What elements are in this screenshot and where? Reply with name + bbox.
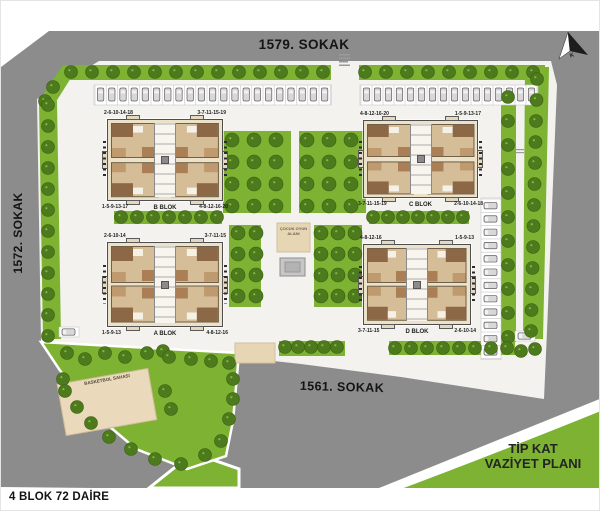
tree-icon [348,247,362,261]
tree-icon [442,211,455,224]
tree-icon [159,385,172,398]
tree-icon [401,66,414,79]
unit-numbers: 4-8-12-16 [360,236,382,241]
tree-highlight [318,230,320,232]
car-windshield [177,91,181,94]
block-name: C BLOK [409,203,432,208]
tree-icon [427,211,440,224]
tree-icon [331,226,345,240]
street-label-left: 1572. SOKAK [11,183,25,283]
playground-label: ÇOCUK OYUN ALANI [277,227,310,236]
tree-highlight [273,181,275,183]
tree-icon [314,268,328,282]
car-windshield [408,91,412,94]
tree-highlight [251,203,253,205]
plan-footer: 4 BLOK 72 DAİRE [9,491,109,503]
tree-highlight [166,354,168,356]
tree-highlight [60,376,62,378]
car-windshield [143,91,147,94]
block-entrance [381,240,395,245]
tree-icon [322,199,336,213]
car-windshield [463,91,467,94]
car-windshield [419,91,423,94]
car-windshield [278,91,282,94]
tree-icon [469,342,482,355]
car-icon [495,88,501,101]
tree-highlight [188,356,190,358]
tree-icon [359,66,372,79]
car-windshield [452,91,456,94]
tree-highlight [118,214,120,216]
tree-icon [344,177,358,191]
tree-highlight [505,166,507,168]
unit-numbers: 4-8-12-16 [206,331,228,336]
car-windshield [255,91,259,94]
car-windshield [485,244,488,248]
car-icon [198,88,204,101]
tree-icon [128,66,141,79]
tree-highlight [467,69,469,71]
car-icon [517,88,523,101]
tree-highlight [352,272,354,274]
tree-icon [149,453,162,466]
tree-highlight [50,84,52,86]
car-windshield [485,310,488,314]
tree-icon [530,94,543,107]
tree-icon [502,235,515,248]
tree-highlight [445,214,447,216]
block-core [406,248,428,321]
block-floorplan-quadrant [111,286,159,323]
tree-highlight [128,446,130,448]
tree-icon [205,355,218,368]
tree-highlight [321,344,323,346]
block-d[interactable]: 4-8-12-16 1-5-9-13 3-7-11-15 2-6-10-14 D… [363,244,471,325]
block-a[interactable]: 2-6-10-14 3-7-11-15 1-5-9-13 4-8-12-16 A… [107,242,223,327]
tree-highlight [64,350,66,352]
tree-highlight [134,214,136,216]
tree-icon [502,163,515,176]
tree-highlight [532,346,534,348]
car-windshield [474,91,478,94]
tree-highlight [278,69,280,71]
tree-icon [269,133,283,147]
tree-icon [501,342,514,355]
tree-highlight [532,160,534,162]
car-windshield [485,337,488,341]
tree-icon [344,155,358,169]
car-icon [221,88,227,101]
tree-highlight [530,69,532,71]
tree-icon [331,268,345,282]
tree-icon [300,155,314,169]
unit-numbers: 2-6-10-14 [454,329,476,334]
tree-highlight [534,97,536,99]
tree-highlight [152,456,154,458]
tree-highlight [162,388,164,390]
tree-highlight [304,203,306,205]
tree-highlight [400,214,402,216]
tree-highlight [273,159,275,161]
tree-icon [227,393,240,406]
tree-icon [42,99,55,112]
tree-icon [231,226,245,240]
tree-icon [42,330,55,343]
car-icon [109,88,115,101]
tree-icon [131,211,144,224]
tree-highlight [173,69,175,71]
unit-numbers: 1-5-9-13-17 [455,112,481,117]
car-icon [120,88,126,101]
tree-icon [528,178,541,191]
tree-icon [254,66,267,79]
tree-highlight [505,94,507,96]
unit-numbers: 1-5-9-13-17 [102,205,128,210]
tree-icon [502,91,515,104]
tree-highlight [505,142,507,144]
tree-highlight [208,358,210,360]
tree-highlight [326,159,328,161]
tree-highlight [45,102,47,104]
car-icon [418,88,424,101]
tree-highlight [456,345,458,347]
tree-icon [185,353,198,366]
block-entrance [439,324,453,329]
car-icon [254,88,260,101]
tree-icon [42,141,55,154]
tree-highlight [531,202,533,204]
tree-highlight [304,137,306,139]
tree-highlight [229,181,231,183]
tree-highlight [45,249,47,251]
car-windshield [188,91,192,94]
block-entrance [381,324,395,329]
tree-highlight [182,214,184,216]
tree-icon [531,73,544,86]
tree-highlight [295,344,297,346]
car-windshield [518,91,522,94]
car-icon [142,88,148,101]
block-core [154,123,176,197]
tree-icon [318,341,331,354]
tree-highlight [532,181,534,183]
unit-numbers: 2-6-10-14-18 [454,202,483,207]
tree-highlight [150,214,152,216]
tree-icon [42,309,55,322]
tree-icon [317,66,330,79]
unit-numbers: 1-5-9-13 [455,236,474,241]
car-windshield [210,91,214,94]
site-plan: 2-6-10-14-18 3-7-11-15-19 1-5-9-13-17 4-… [0,0,600,511]
tree-icon [314,289,328,303]
tree-icon [525,304,538,317]
car-windshield [496,91,500,94]
tree-highlight [229,137,231,139]
tree-icon [247,133,261,147]
block-floorplan-quadrant [367,248,412,283]
tree-icon [502,187,515,200]
tree-highlight [304,159,306,161]
tree-highlight [505,118,507,120]
block-b[interactable]: 2-6-10-14-18 3-7-11-15-19 1-5-9-13-17 4-… [107,119,223,201]
tree-highlight [202,452,204,454]
tree-highlight [45,291,47,293]
block-c[interactable]: 4-8-12-16-20 1-5-9-13-17 3-7-11-15-19 2-… [363,120,478,198]
tree-icon [314,247,328,261]
block-floorplan-quadrant [367,124,414,157]
tree-icon [165,403,178,416]
tree-icon [227,373,240,386]
tree-icon [331,341,344,354]
tree-icon [296,66,309,79]
tree-icon [457,211,470,224]
tree-icon [79,353,92,366]
block-floorplan-quadrant [171,286,219,323]
tree-highlight [257,69,259,71]
tree-icon [331,247,345,261]
tree-highlight [505,310,507,312]
car-icon [187,88,193,101]
car-icon [131,88,137,101]
unit-numbers: 3-7-11-15-19 [197,111,226,116]
block-core [154,246,176,323]
block-name: B BLOK [154,206,177,211]
tree-highlight [273,137,275,139]
tree-highlight [529,307,531,309]
car-icon [165,88,171,101]
unit-numbers: 4-8-12-16-20 [199,205,228,210]
tree-highlight [299,69,301,71]
tree-icon [526,262,539,275]
block-floorplan-quadrant [171,246,219,283]
tree-highlight [226,360,228,362]
car-windshield [266,91,270,94]
tree-highlight [68,69,70,71]
tree-highlight [218,438,220,440]
tree-icon [344,133,358,147]
tree-highlight [408,345,410,347]
tree-icon [225,177,239,191]
tree-icon [502,283,515,296]
tree-icon [526,283,539,296]
tree-highlight [273,203,275,205]
tree-icon [527,241,540,254]
tree-highlight [251,181,253,183]
tree-icon [119,351,132,364]
car-icon [407,88,413,101]
tree-icon [191,66,204,79]
car-icon [209,88,215,101]
block-floorplan-quadrant [111,246,159,283]
tree-highlight [509,69,511,71]
tree-icon [199,449,212,462]
plan-title: TİP KAT VAZİYET PLANI [433,441,600,471]
plan-title-line2: VAZİYET PLANI [433,456,600,471]
block-entrance [190,238,204,243]
tree-highlight [253,251,255,253]
tree-icon [269,155,283,169]
unit-numbers: 3-7-11-15-19 [358,202,387,207]
car-icon [374,88,380,101]
car-icon [385,88,391,101]
car-icon [299,88,305,101]
car-icon [176,88,182,101]
tree-icon [175,458,188,471]
tree-icon [322,155,336,169]
tree-highlight [335,293,337,295]
tree-highlight [415,214,417,216]
tree-icon [59,385,72,398]
car-icon [310,88,316,101]
tree-icon [502,115,515,128]
tree-icon [231,289,245,303]
car-windshield [397,91,401,94]
car-icon [277,88,283,101]
balcony-ticks [479,141,482,177]
tree-highlight [326,137,328,139]
tree-highlight [194,69,196,71]
tree-icon [367,211,380,224]
tree-icon [412,211,425,224]
tree-icon [292,341,305,354]
tree-icon [149,66,162,79]
block-entrance [439,240,453,245]
tree-icon [115,211,128,224]
tree-highlight [334,344,336,346]
block-name: A BLOK [154,332,177,337]
tree-highlight [488,69,490,71]
block-entrance [126,238,140,243]
car-windshield [386,91,390,94]
car-icon [232,88,238,101]
tree-highlight [318,251,320,253]
tree-highlight [472,345,474,347]
tree-icon [502,259,515,272]
tree-highlight [45,186,47,188]
tree-icon [71,401,84,414]
tree-highlight [348,159,350,161]
car-windshield [166,91,170,94]
tree-icon [322,133,336,147]
tree-icon [305,341,318,354]
tree-icon [225,133,239,147]
car-windshield [311,91,315,94]
block-floorplan-quadrant [111,123,159,158]
tree-icon [231,247,245,261]
tree-highlight [530,244,532,246]
block-floorplan-quadrant [171,162,219,197]
tree-icon [529,343,542,356]
tree-icon [382,211,395,224]
tree-highlight [166,214,168,216]
car-windshield [441,91,445,94]
tree-highlight [348,203,350,205]
car-windshield [485,204,488,208]
tree-highlight [352,230,354,232]
car-windshield [485,297,488,301]
tree-highlight [335,272,337,274]
car-windshield [485,230,488,234]
tree-highlight [430,214,432,216]
tree-icon [502,211,515,224]
tree-highlight [226,416,228,418]
tree-highlight [235,251,237,253]
tree-icon [103,431,116,444]
car-icon [265,88,271,101]
tree-highlight [253,230,255,232]
car-icon [473,88,479,101]
tree-icon [247,199,261,213]
tree-highlight [45,312,47,314]
tree-highlight [282,344,284,346]
tree-icon [42,120,55,133]
tree-icon [397,211,410,224]
balcony-ticks [359,141,362,177]
tree-highlight [335,230,337,232]
tree-highlight [505,190,507,192]
unit-numbers: 1-5-9-13 [102,331,121,336]
tree-highlight [505,334,507,336]
tree-highlight [152,69,154,71]
tree-highlight [251,137,253,139]
tree-icon [502,139,515,152]
tree-highlight [335,251,337,253]
tree-highlight [45,333,47,335]
tree-highlight [253,293,255,295]
tree-highlight [460,214,462,216]
tree-icon [300,199,314,213]
tree-icon [141,347,154,360]
tree-highlight [308,344,310,346]
tree-highlight [392,345,394,347]
tree-highlight [230,376,232,378]
plan-title-line1: TİP KAT [433,441,600,456]
tree-icon [47,81,60,94]
car-windshield [289,91,293,94]
tree-highlight [45,207,47,209]
tree-icon [249,226,263,240]
tree-highlight [518,348,520,350]
tree-icon [223,413,236,426]
tree-highlight [102,350,104,352]
car-windshield [63,330,66,334]
car-windshield [121,91,125,94]
car-windshield [485,270,488,274]
tree-icon [147,211,160,224]
tree-highlight [178,461,180,463]
car-windshield [300,91,304,94]
unit-numbers: 3-7-11-15 [358,329,379,334]
tree-highlight [362,69,364,71]
tree-icon [211,211,224,224]
tree-icon [331,289,345,303]
tree-highlight [318,272,320,274]
car-windshield [364,91,368,94]
tree-icon [179,211,192,224]
balcony-ticks [359,266,362,304]
tree-highlight [320,69,322,71]
tree-icon [86,66,99,79]
tree-highlight [530,265,532,267]
tree-highlight [215,69,217,71]
tree-icon [530,115,543,128]
block-floorplan-quadrant [422,286,467,321]
tree-highlight [235,293,237,295]
tree-icon [485,66,498,79]
tree-icon [314,226,328,240]
balcony-ticks [103,265,106,305]
tree-highlight [236,69,238,71]
